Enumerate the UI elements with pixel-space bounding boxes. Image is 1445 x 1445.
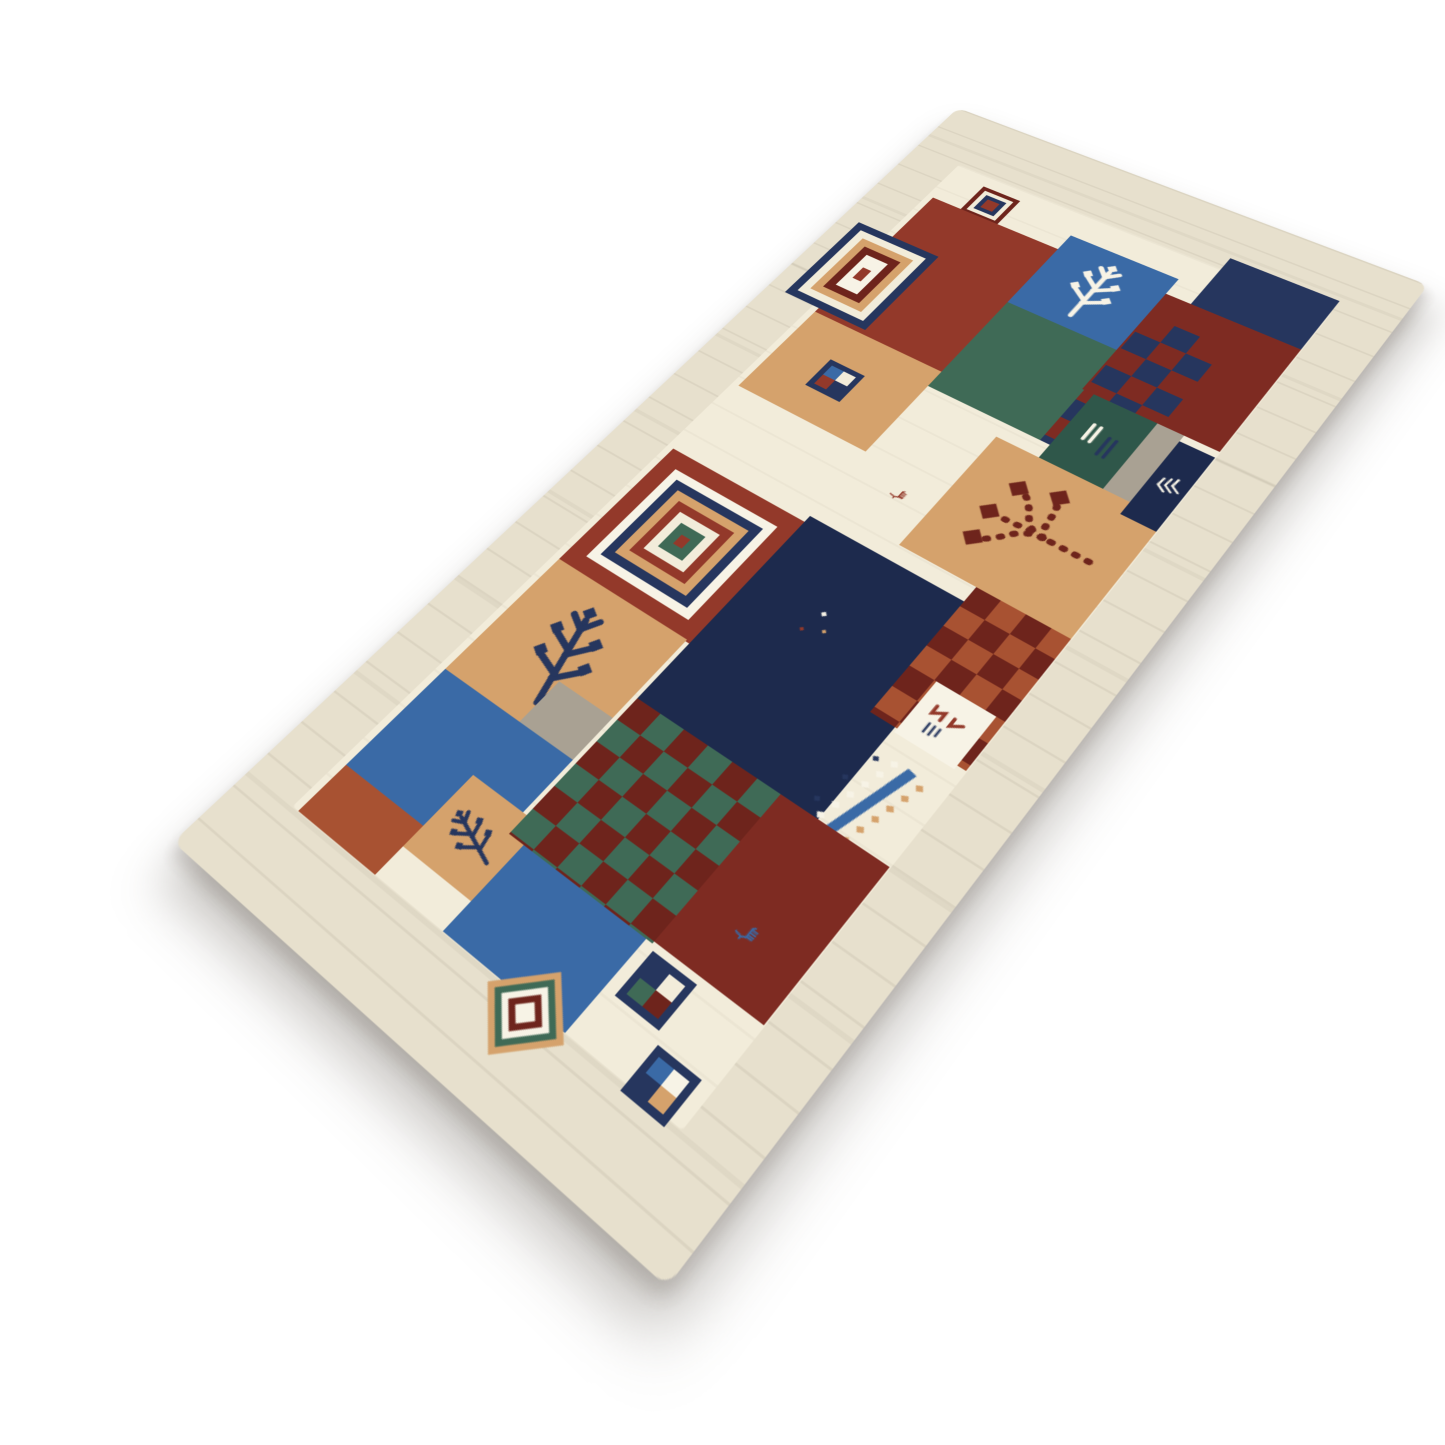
rug-border bbox=[173, 108, 1428, 1287]
pinwheel-motif-3 bbox=[620, 1045, 702, 1127]
goat-motif bbox=[879, 479, 920, 511]
medallion-ring bbox=[658, 523, 706, 561]
goat-glyph bbox=[881, 481, 917, 509]
medallion-ring bbox=[980, 199, 999, 211]
medallion-dot bbox=[852, 267, 871, 281]
rug-field bbox=[293, 165, 1332, 1131]
medallion-ring bbox=[644, 512, 720, 573]
photo-scene bbox=[0, 0, 1445, 1445]
medallion-ring bbox=[508, 995, 542, 1032]
medallion-ring bbox=[629, 501, 734, 584]
medallion-ring bbox=[495, 979, 557, 1047]
chevrons-glyph bbox=[1146, 446, 1190, 528]
medallion-ring bbox=[501, 987, 549, 1039]
medallion-ring bbox=[515, 1002, 535, 1023]
medallion-dot bbox=[673, 535, 690, 549]
medallion-ring bbox=[973, 195, 1006, 216]
medallion-ring bbox=[836, 255, 888, 295]
diamond-medallion bbox=[488, 972, 564, 1055]
medallion-ring bbox=[823, 247, 900, 304]
